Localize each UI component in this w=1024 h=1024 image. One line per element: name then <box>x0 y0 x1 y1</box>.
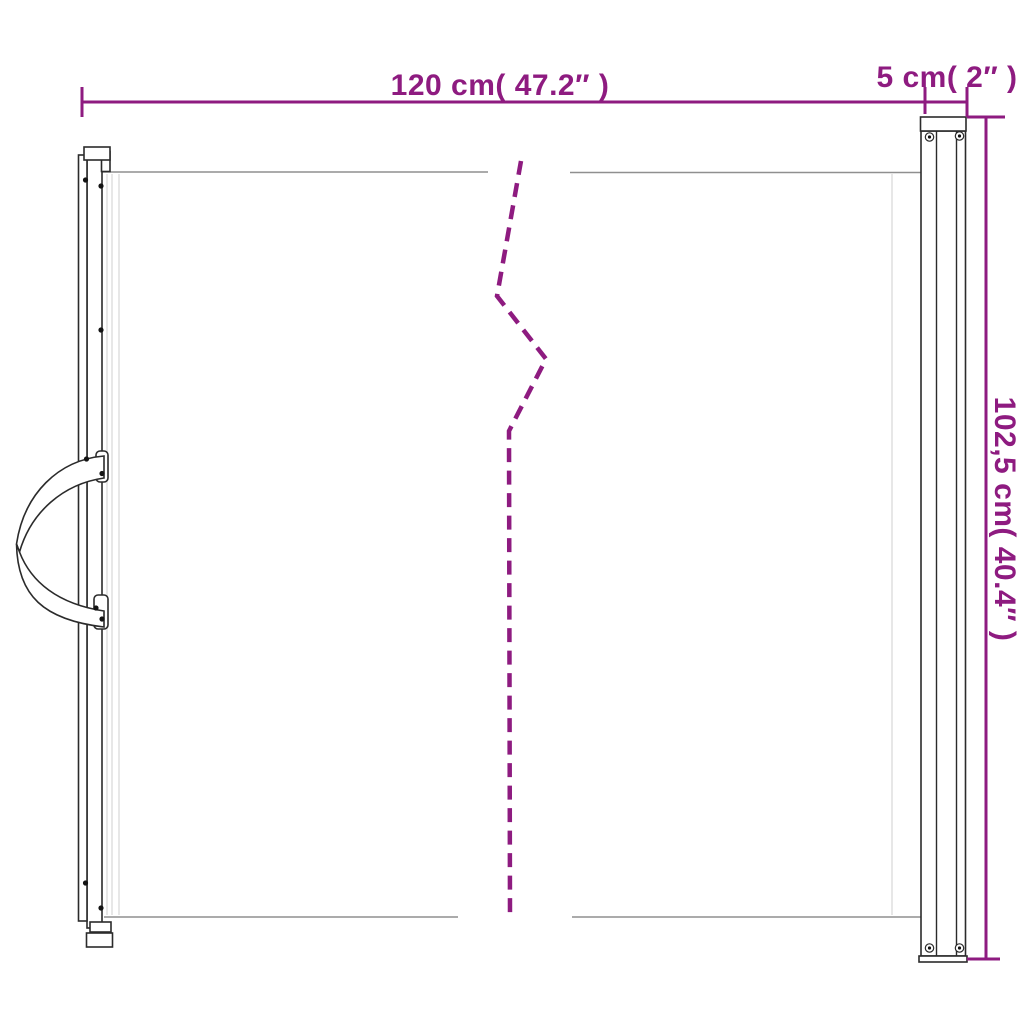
right-post-body <box>921 131 966 956</box>
width-dimension-label: 120 cm( 47.2″ ) <box>391 69 610 102</box>
screw-icon <box>958 134 961 137</box>
screw-icon <box>958 946 961 949</box>
break-line <box>497 161 546 919</box>
width-dimension: 120 cm( 47.2″ ) <box>82 69 967 117</box>
rivet-icon <box>83 177 88 182</box>
left-post-inner-bar <box>87 158 102 928</box>
height-dimension-label: 102,5 cm( 40.4″ ) <box>988 397 1021 642</box>
rivet-icon <box>84 456 89 461</box>
rivet-icon <box>99 471 104 476</box>
post-width-dimension-label: 5 cm( 2″ ) <box>876 61 1017 94</box>
right-post-bottom-cap <box>919 956 967 962</box>
post-width-dimension: 5 cm( 2″ ) <box>876 61 1017 94</box>
right-post-top-cap <box>921 117 967 131</box>
right-post <box>919 117 967 962</box>
rivet-icon <box>98 327 103 332</box>
screw-icon <box>928 946 931 949</box>
product-dimension-drawing: 120 cm( 47.2″ ) 5 cm( 2″ ) 102,5 cm( 40.… <box>0 0 1024 1024</box>
height-dimension: 102,5 cm( 40.4″ ) <box>967 117 1021 959</box>
left-post-foot <box>87 933 113 947</box>
left-post-bottom-step <box>90 922 111 932</box>
rivet-icon <box>99 616 104 621</box>
rivet-icon <box>93 605 98 610</box>
left-post-outer-bar <box>79 155 88 921</box>
left-post-top-cap <box>84 147 110 160</box>
rivet-icon <box>98 183 103 188</box>
rivet-icon <box>83 880 88 885</box>
diagram-canvas: 120 cm( 47.2″ ) 5 cm( 2″ ) 102,5 cm( 40.… <box>0 0 1024 1024</box>
rivet-icon <box>98 905 103 910</box>
screw-icon <box>928 135 931 138</box>
